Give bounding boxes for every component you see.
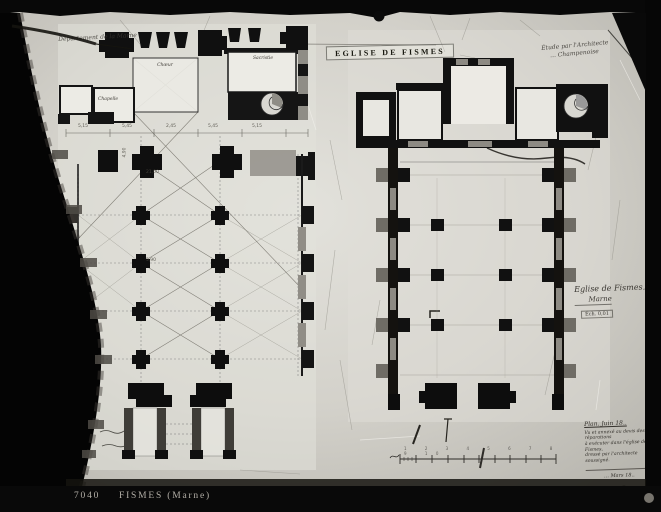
sacristy-label: Sacristie <box>236 56 290 61</box>
dimension-annotation: 5,15 <box>78 124 88 129</box>
left-floor-plan <box>58 24 316 468</box>
cartouche-scale-note: Éch. 0,01 <box>581 309 613 318</box>
nave-piers <box>132 206 229 369</box>
nave-piers <box>398 168 554 332</box>
title-cartouche: Eglise de Fismes. Marne Éch. 0,01 <box>574 282 657 319</box>
west-end-piers <box>388 383 564 410</box>
dimension-annotation: 5,45 <box>208 124 218 129</box>
choir-label: Chœur <box>142 63 188 68</box>
dimension-line <box>66 129 308 137</box>
archive-number: 7040 <box>74 491 100 511</box>
archival-photo-plate: 1 2 3 4 5 6 7 8 9 10 Département de la M… <box>0 0 661 512</box>
plate-caption: FISMES (Marne) <box>119 491 211 511</box>
dimension-annotation: 5,15 <box>252 124 262 129</box>
guide-lines <box>400 162 554 378</box>
dimension-annotation: 5,45 <box>122 124 132 129</box>
chapel-label: Chapelle <box>86 97 130 102</box>
scale-tick-numbers: 1 2 3 4 5 6 7 8 9 10 <box>404 446 564 456</box>
dimension-annotation: 2,45 <box>166 124 176 129</box>
note-heading: Plan. Juin 18.. <box>584 418 660 428</box>
signature <box>586 478 639 500</box>
dimension-annotation: 4,90 <box>123 147 128 157</box>
west-porch <box>122 408 236 459</box>
north-chapels <box>58 86 134 124</box>
dimension-annotation: 5,90 <box>146 258 156 263</box>
aisle-walls <box>66 154 314 376</box>
plan-title: EGLISE DE FISMES <box>326 44 454 61</box>
cartouche-line1: Eglise de Fismes. <box>574 282 656 295</box>
right-floor-plan <box>348 28 610 420</box>
cartouche-line2: Marne <box>574 295 612 306</box>
transept-chapel <box>250 150 315 180</box>
spiral-staircase-right-plan <box>564 94 588 118</box>
spiral-staircase-left-plan <box>261 93 283 115</box>
bottom-right-note: Plan. Juin 18.. Vu et annexé au devis de… <box>584 418 661 502</box>
west-piers <box>128 383 232 407</box>
dimension-annotation: 21,00 <box>146 170 159 175</box>
east-wall <box>298 50 308 120</box>
